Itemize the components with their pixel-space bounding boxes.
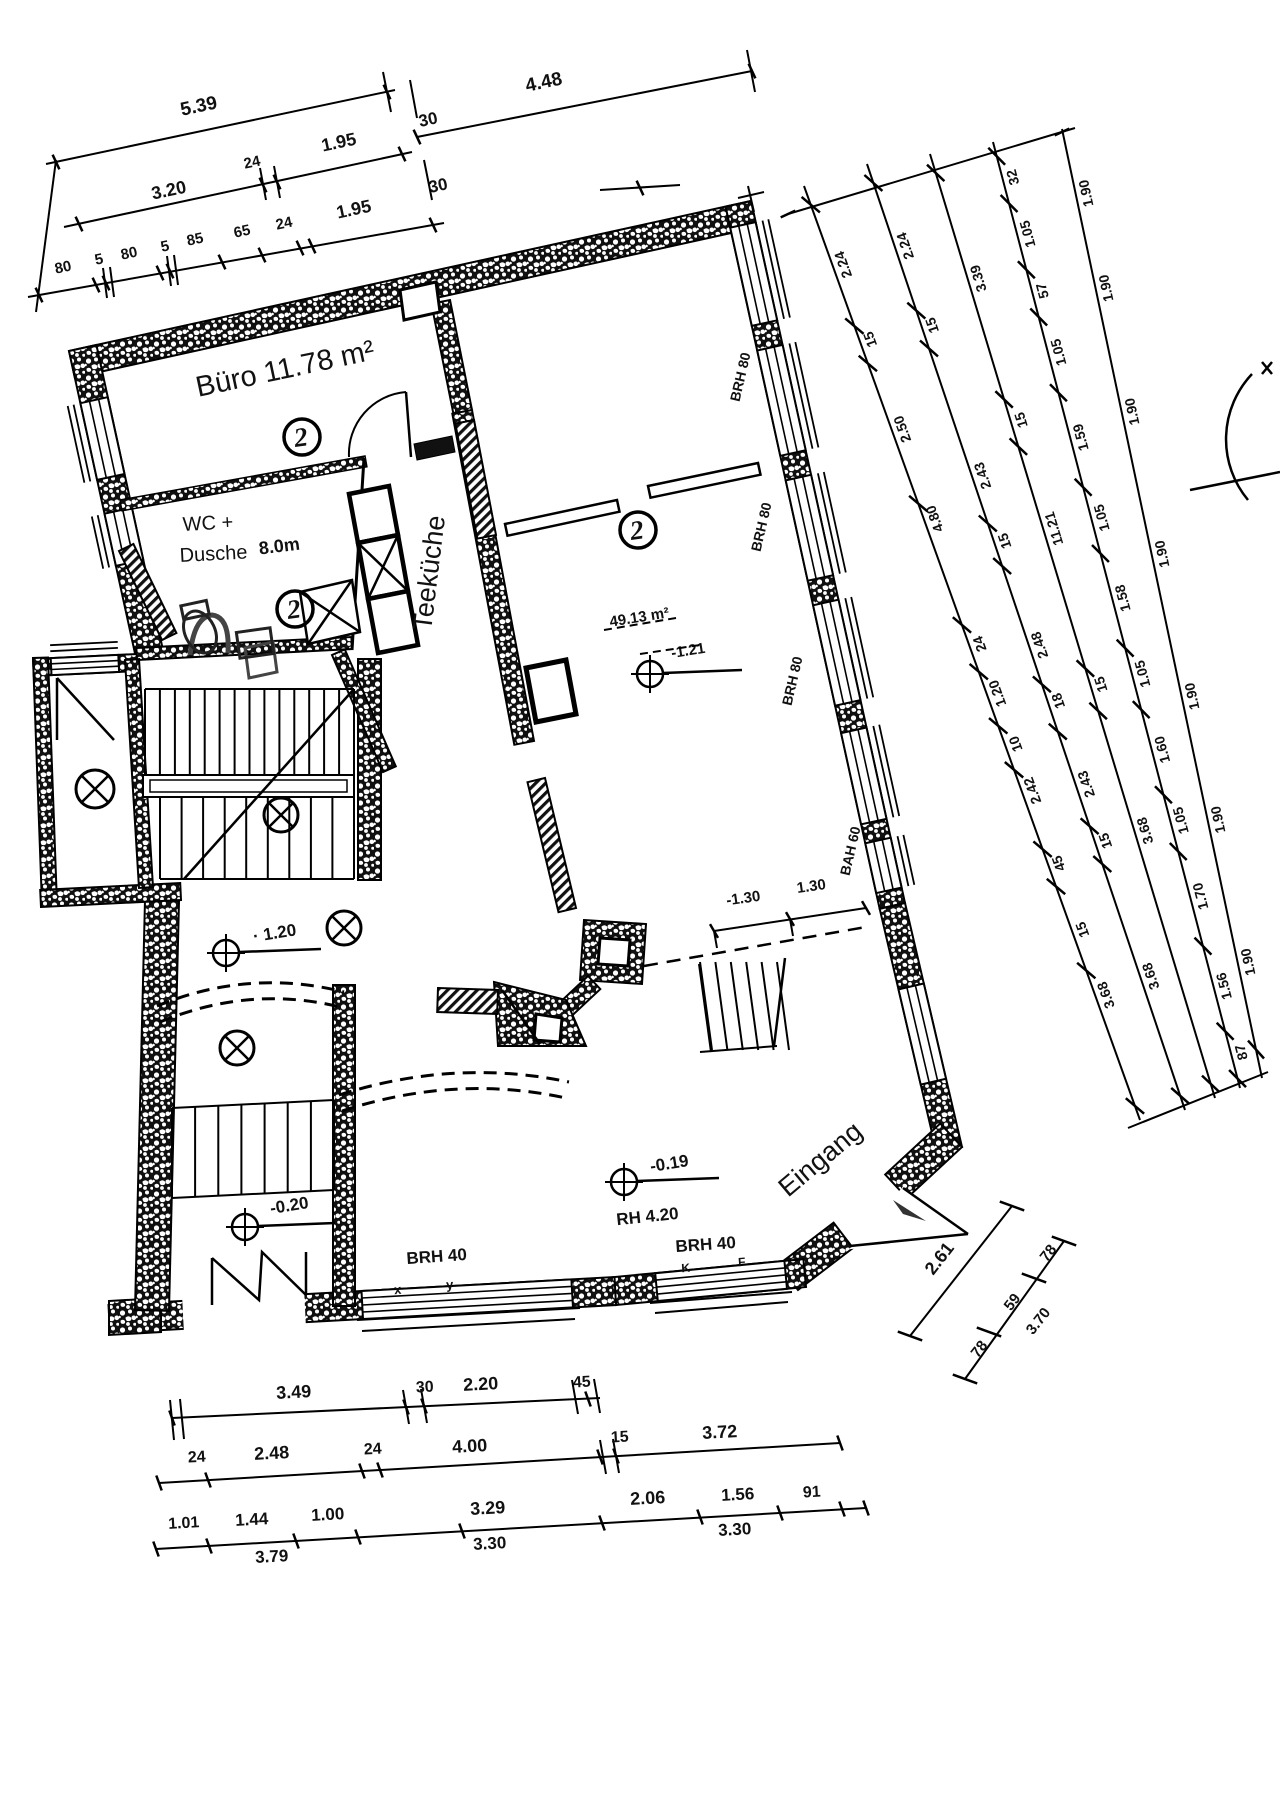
svg-text:WC +: WC + <box>182 511 234 536</box>
svg-text:24: 24 <box>363 1441 382 1459</box>
svg-text:F: F <box>738 1255 746 1269</box>
svg-text:3.72: 3.72 <box>702 1421 738 1443</box>
svg-text:3.79: 3.79 <box>255 1546 289 1567</box>
svg-text:80: 80 <box>119 244 139 264</box>
svg-text:45: 45 <box>572 1374 591 1392</box>
svg-text:1.00: 1.00 <box>311 1504 345 1525</box>
svg-text:2.48: 2.48 <box>254 1442 290 1464</box>
svg-text:1.56: 1.56 <box>721 1484 755 1505</box>
svg-text:K: K <box>681 1261 691 1276</box>
svg-text:15: 15 <box>610 1429 629 1447</box>
svg-text:3.49: 3.49 <box>276 1381 312 1403</box>
svg-text:3.30: 3.30 <box>718 1519 752 1540</box>
svg-text:30: 30 <box>417 108 439 131</box>
svg-text:65: 65 <box>232 222 252 242</box>
svg-text:3.29: 3.29 <box>470 1497 506 1519</box>
svg-text:Dusche: Dusche <box>179 541 248 567</box>
svg-text:24: 24 <box>187 1449 206 1467</box>
svg-text:80: 80 <box>53 258 73 278</box>
svg-text:85: 85 <box>185 230 205 250</box>
svg-text:1.44: 1.44 <box>235 1509 270 1530</box>
svg-text:2.06: 2.06 <box>630 1487 666 1509</box>
svg-text:30: 30 <box>415 1379 434 1397</box>
svg-text:3.30: 3.30 <box>473 1533 507 1554</box>
svg-text:2.20: 2.20 <box>463 1373 499 1395</box>
svg-text:91: 91 <box>802 1484 821 1502</box>
svg-text:1.01: 1.01 <box>168 1514 200 1533</box>
svg-text:4.00: 4.00 <box>452 1435 488 1457</box>
